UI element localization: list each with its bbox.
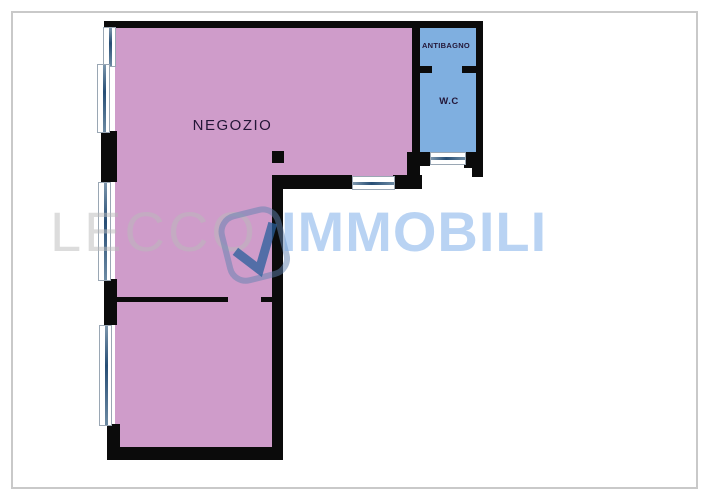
wall-partition: [117, 297, 228, 302]
wall-antibagno-wc-left: [413, 66, 432, 73]
window-left-4: [99, 325, 112, 426]
wall-partition-stub: [261, 297, 272, 302]
wall-leg-right: [272, 175, 283, 460]
wall-antibagno-wc-right: [462, 66, 477, 73]
wall-right-stub: [472, 166, 483, 177]
wall-pillar: [272, 151, 284, 163]
wall-bottom: [107, 447, 283, 460]
window-left-3: [98, 182, 111, 281]
room-negozio-leg: [115, 27, 272, 448]
window-left-2: [97, 64, 110, 133]
wall-left-upper: [101, 131, 117, 182]
floorplan-image: NEGOZIO ANTIBAGNO W.C LECCO IMMOBILI: [0, 0, 707, 500]
wall-upper-bottom-left: [272, 175, 352, 189]
window-upper-bottom: [352, 176, 395, 190]
room-label-negozio: NEGOZIO: [180, 117, 285, 134]
wall-left-middle: [104, 279, 117, 325]
room-label-antibagno: ANTIBAGNO: [413, 41, 479, 50]
window-wc-bottom: [430, 152, 466, 165]
wall-upper-bottom-right: [393, 175, 422, 189]
window-left-1: [103, 27, 116, 67]
room-label-wc: W.C: [420, 96, 478, 107]
wall-top: [104, 21, 483, 28]
